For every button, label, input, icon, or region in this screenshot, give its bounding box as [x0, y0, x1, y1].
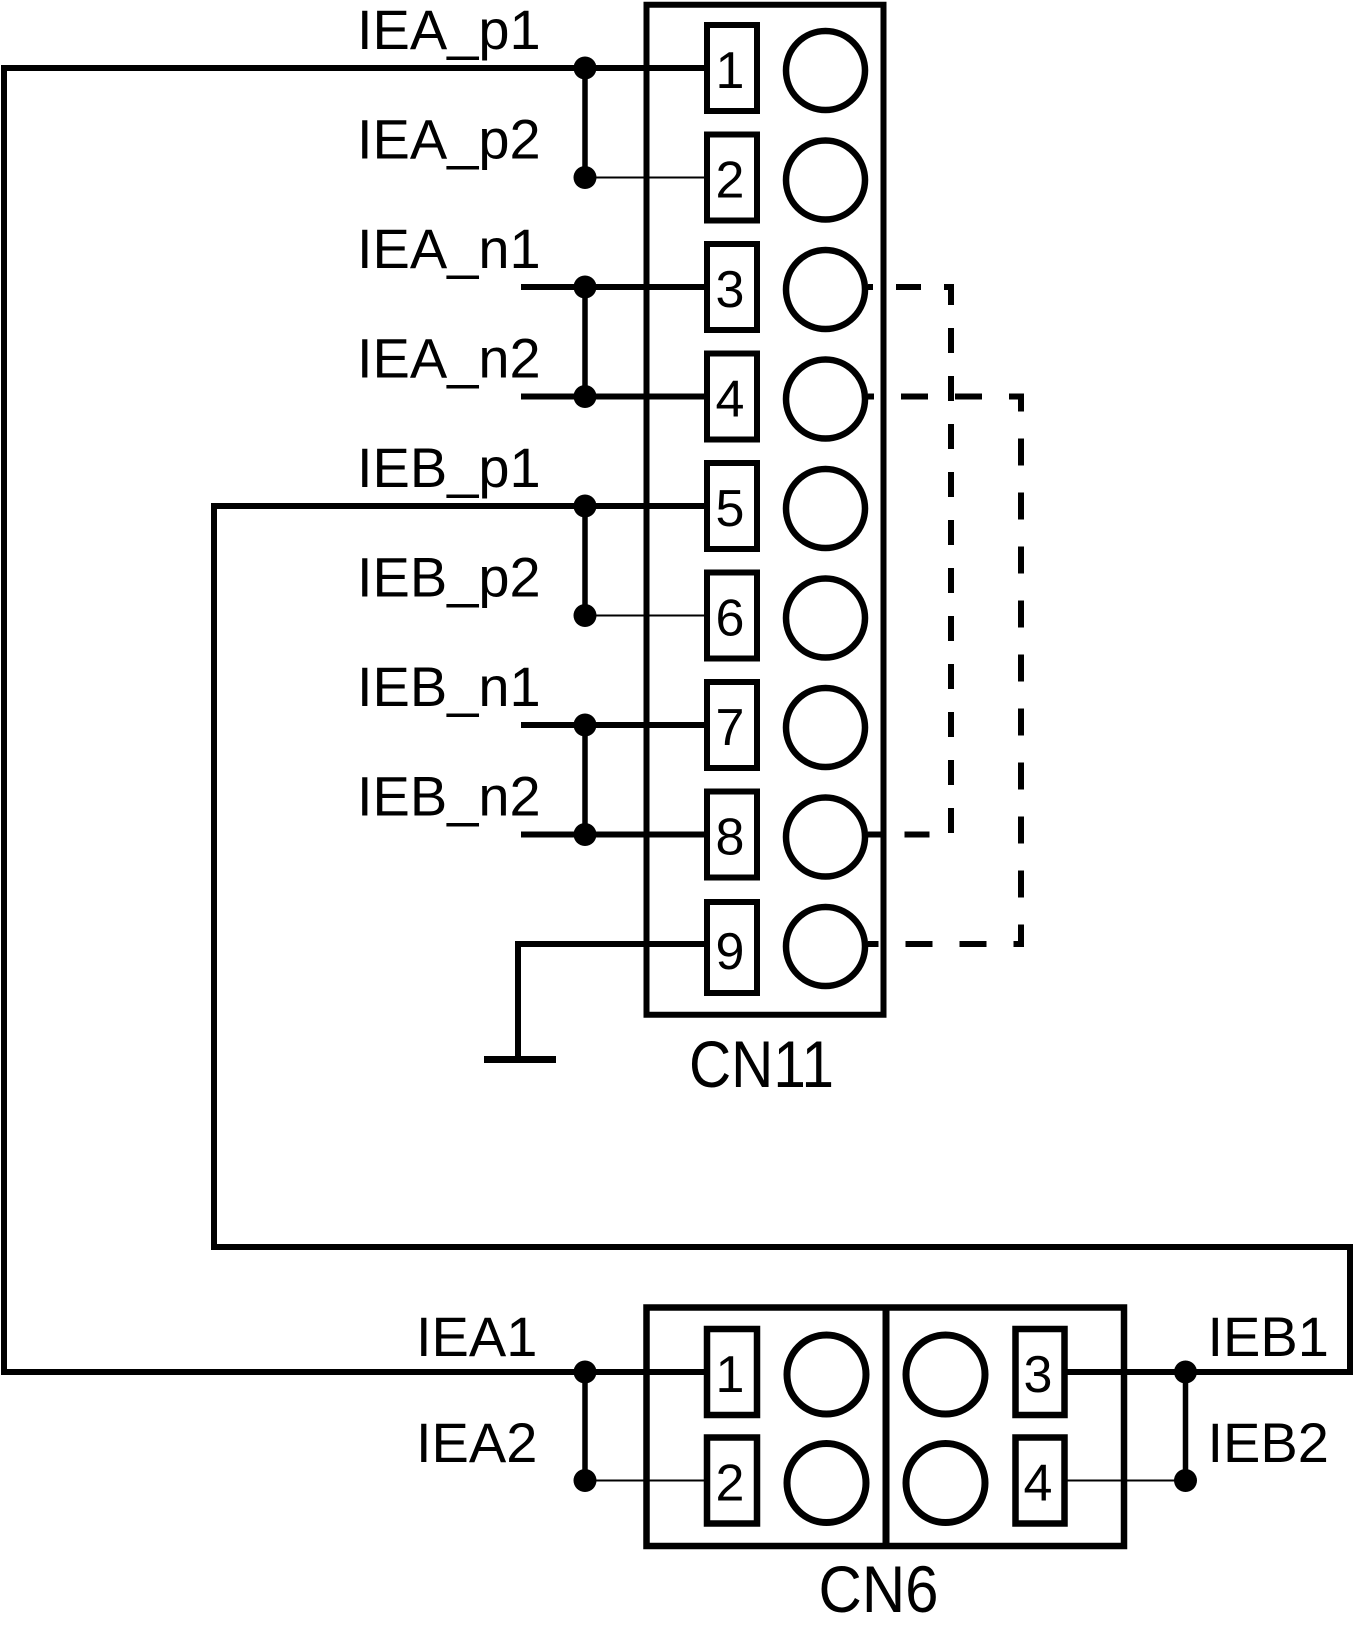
svg-text:4: 4 [1024, 1455, 1053, 1513]
svg-text:8: 8 [716, 809, 745, 867]
svg-text:1: 1 [716, 1346, 745, 1404]
svg-text:7: 7 [716, 699, 745, 757]
svg-text:IEA_p1: IEA_p1 [357, 0, 541, 61]
svg-text:IEA2: IEA2 [416, 1411, 537, 1474]
svg-text:2: 2 [716, 152, 745, 210]
svg-text:6: 6 [716, 590, 745, 648]
svg-text:5: 5 [716, 480, 745, 538]
svg-text:CN11: CN11 [689, 1027, 834, 1101]
svg-text:4: 4 [716, 371, 745, 429]
svg-text:3: 3 [1024, 1346, 1053, 1404]
svg-text:9: 9 [716, 923, 745, 981]
svg-text:IEB2: IEB2 [1208, 1411, 1329, 1474]
svg-text:IEA1: IEA1 [416, 1305, 537, 1368]
svg-text:IEA_n2: IEA_n2 [357, 327, 541, 390]
svg-text:CN6: CN6 [819, 1552, 939, 1626]
svg-text:IEA_n1: IEA_n1 [357, 217, 541, 280]
svg-text:1: 1 [716, 42, 745, 100]
svg-text:IEB1: IEB1 [1208, 1305, 1329, 1368]
svg-text:IEB_n1: IEB_n1 [357, 655, 541, 718]
svg-text:2: 2 [716, 1455, 745, 1513]
svg-text:IEB_n2: IEB_n2 [357, 765, 541, 828]
svg-text:IEA_p2: IEA_p2 [357, 108, 541, 171]
svg-text:IEB_p1: IEB_p1 [357, 436, 541, 499]
svg-text:3: 3 [716, 261, 745, 319]
svg-text:IEB_p2: IEB_p2 [357, 546, 541, 609]
